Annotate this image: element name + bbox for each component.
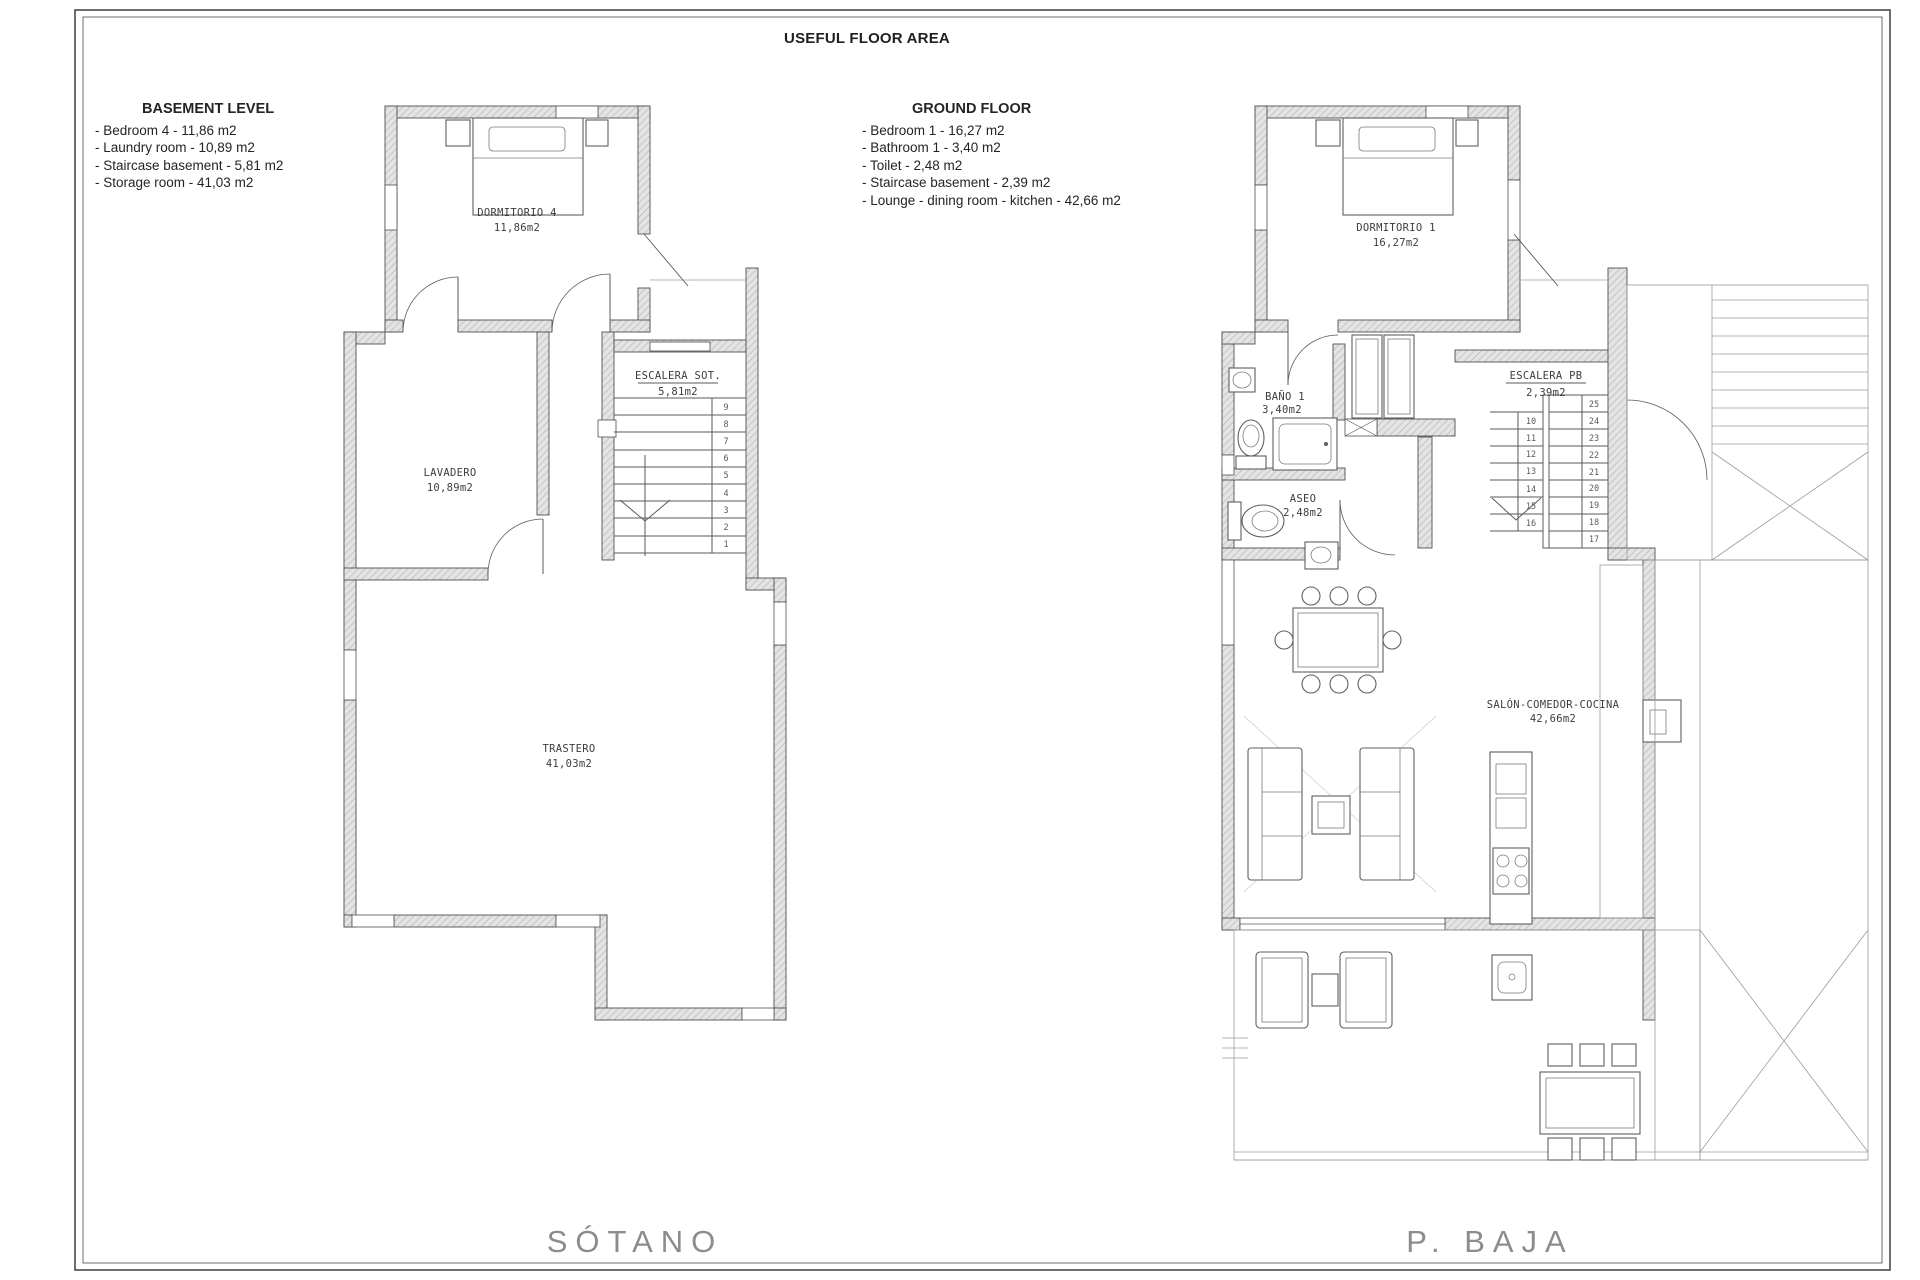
sofa-icon bbox=[1244, 716, 1436, 892]
ground-doors bbox=[1240, 234, 1707, 924]
toilet-icon bbox=[1236, 420, 1266, 469]
stair-number: 20 bbox=[1589, 484, 1599, 494]
legend-item: - Bedroom 1 - 16,27 m2 bbox=[862, 122, 1121, 140]
room-label-aseo: ASEO bbox=[1290, 493, 1317, 505]
outdoor-dining-icon bbox=[1540, 1044, 1640, 1160]
room-label-dormitorio4: DORMITORIO 4 bbox=[477, 207, 556, 219]
stair-number: 3 bbox=[723, 506, 728, 516]
ground-walls bbox=[1222, 106, 1655, 1020]
room-label-escalera-pb: ESCALERA PB bbox=[1510, 370, 1583, 382]
room-area-lavadero: 10,89m2 bbox=[427, 482, 473, 494]
legend-ground-floor: GROUND FLOOR - Bedroom 1 - 16,27 m2 - Ba… bbox=[862, 101, 1121, 209]
room-label-dormitorio1: DORMITORIO 1 bbox=[1356, 222, 1435, 234]
ground-stairs-icon: 10 11 12 13 14 15 16 25 24 23 22 21 20 1… bbox=[1490, 395, 1608, 548]
basement-doors bbox=[403, 234, 746, 574]
stair-number: 6 bbox=[723, 454, 728, 464]
room-label-salon: SALÓN-COMEDOR-COCINA bbox=[1487, 698, 1620, 711]
outdoor-armchairs-icon bbox=[1256, 952, 1392, 1028]
stair-number: 2 bbox=[723, 523, 728, 533]
plan-sheet: 9 8 7 6 5 4 3 2 1 DORMITORIO 4 11,86m2 L… bbox=[0, 0, 1920, 1280]
room-area-dormitorio4: 11,86m2 bbox=[494, 222, 540, 234]
caption-p-baja: P. BAJA bbox=[1360, 1224, 1620, 1260]
legend-ground-heading: GROUND FLOOR bbox=[912, 101, 1121, 119]
legend-item: - Bathroom 1 - 3,40 m2 bbox=[862, 139, 1121, 157]
legend-basement-heading: BASEMENT LEVEL bbox=[142, 101, 283, 119]
legend-basement: BASEMENT LEVEL - Bedroom 4 - 11,86 m2 - … bbox=[95, 101, 283, 192]
legend-item: - Laundry room - 10,89 m2 bbox=[95, 139, 283, 157]
stair-number: 5 bbox=[723, 471, 728, 481]
stair-number: 22 bbox=[1589, 451, 1599, 461]
room-area-aseo: 2,48m2 bbox=[1283, 507, 1323, 519]
room-label-escalera-sot: ESCALERA SOT. bbox=[635, 370, 721, 382]
legend-item: - Toilet - 2,48 m2 bbox=[862, 157, 1121, 175]
room-area-salon: 42,66m2 bbox=[1530, 713, 1576, 725]
stove-icon bbox=[1493, 848, 1529, 894]
room-label-lavadero: LAVADERO bbox=[424, 467, 477, 479]
stair-number: 19 bbox=[1589, 501, 1599, 511]
room-label-bano1: BAÑO 1 bbox=[1265, 390, 1305, 403]
outdoor-sink-icon bbox=[1492, 955, 1532, 1000]
basement-plan: 9 8 7 6 5 4 3 2 1 DORMITORIO 4 11,86m2 L… bbox=[344, 106, 786, 1020]
stair-number: 10 bbox=[1526, 417, 1536, 427]
stair-number: 16 bbox=[1526, 519, 1536, 529]
bed-icon bbox=[1316, 118, 1478, 215]
bathroom-sink-icon bbox=[1229, 368, 1255, 392]
stair-number: 12 bbox=[1526, 450, 1536, 460]
legend-item: - Staircase basement - 5,81 m2 bbox=[95, 157, 283, 175]
basement-windows bbox=[344, 106, 786, 1020]
stair-number: 11 bbox=[1526, 434, 1536, 444]
dining-table-icon bbox=[1275, 587, 1401, 693]
legend-item: - Bedroom 4 - 11,86 m2 bbox=[95, 122, 283, 140]
stair-number: 17 bbox=[1589, 535, 1599, 545]
wardrobe-icon bbox=[1352, 335, 1414, 418]
stair-number: 9 bbox=[723, 403, 728, 413]
basement-walls bbox=[344, 106, 786, 1020]
legend-item: - Staircase basement - 2,39 m2 bbox=[862, 174, 1121, 192]
room-area-dormitorio1: 16,27m2 bbox=[1373, 237, 1419, 249]
stair-number: 15 bbox=[1526, 502, 1536, 512]
stair-number: 1 bbox=[723, 540, 728, 550]
room-area-trastero: 41,03m2 bbox=[546, 758, 592, 770]
stair-number: 8 bbox=[723, 420, 728, 430]
page-title: USEFUL FLOOR AREA bbox=[767, 30, 967, 47]
shower-icon bbox=[1273, 418, 1337, 470]
stair-number: 23 bbox=[1589, 434, 1599, 444]
stair-number: 25 bbox=[1589, 400, 1599, 410]
stair-number: 14 bbox=[1526, 485, 1536, 495]
stair-number: 21 bbox=[1589, 468, 1599, 478]
stair-number: 4 bbox=[723, 489, 728, 499]
room-area-bano1: 3,40m2 bbox=[1262, 404, 1302, 416]
room-area-escalera-sot: 5,81m2 bbox=[658, 386, 698, 398]
bed-icon bbox=[446, 118, 608, 215]
legend-item: - Storage room - 41,03 m2 bbox=[95, 174, 283, 192]
stair-number: 7 bbox=[723, 437, 728, 447]
legend-item: - Lounge - dining room - kitchen - 42,66… bbox=[862, 192, 1121, 210]
stair-number: 13 bbox=[1526, 467, 1536, 477]
stair-number: 24 bbox=[1589, 417, 1599, 427]
ground-floor-plan: 10 11 12 13 14 15 16 25 24 23 22 21 20 1… bbox=[1222, 106, 1868, 1160]
caption-sotano: SÓTANO bbox=[505, 1224, 765, 1260]
room-label-trastero: TRASTERO bbox=[543, 743, 596, 755]
basement-stairs-icon: 9 8 7 6 5 4 3 2 1 bbox=[614, 398, 746, 556]
room-area-escalera-pb: 2,39m2 bbox=[1526, 387, 1566, 399]
stair-number: 18 bbox=[1589, 518, 1599, 528]
